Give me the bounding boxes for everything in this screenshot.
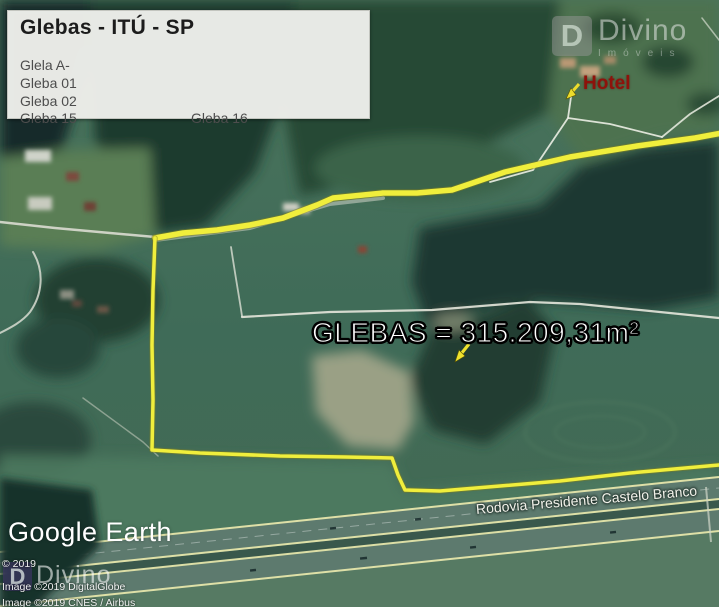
- divino-subtitle-text: Imóveis: [598, 48, 687, 59]
- satellite-map-view: Glebas - ITÚ - SP Glela A- Gleba 01 Gleb…: [0, 0, 719, 607]
- copyright-line-1: © 2019: [2, 558, 36, 570]
- copyright-line-3: Image ©2019 CNES / Airbus: [2, 597, 135, 607]
- divino-brand-text: Divino: [598, 16, 687, 46]
- gleba-list-item: Gleba 02: [20, 93, 77, 109]
- google-earth-logo: Google Earth: [8, 517, 172, 548]
- divino-logo-icon: D: [552, 16, 592, 56]
- gleba-list-item: Gleba 01: [20, 75, 77, 91]
- divino-monogram: D: [561, 18, 583, 54]
- area-label: GLEBAS = 315.209,31m²: [312, 317, 639, 349]
- info-box-title: Glebas - ITÚ - SP: [20, 16, 194, 40]
- divino-imoveis-watermark: D Divino Imóveis: [552, 16, 687, 59]
- property-info-box: Glebas - ITÚ - SP Glela A- Gleba 01 Gleb…: [7, 10, 370, 119]
- gleba-list-item: Gleba 15: [20, 110, 77, 126]
- gleba-list-item: Gleba 16: [191, 110, 248, 126]
- gleba-list-item: Glela A-: [20, 57, 70, 73]
- copyright-line-2: Image ©2019 DigitalGlobe: [2, 581, 125, 593]
- hotel-label: Hotel: [583, 73, 631, 95]
